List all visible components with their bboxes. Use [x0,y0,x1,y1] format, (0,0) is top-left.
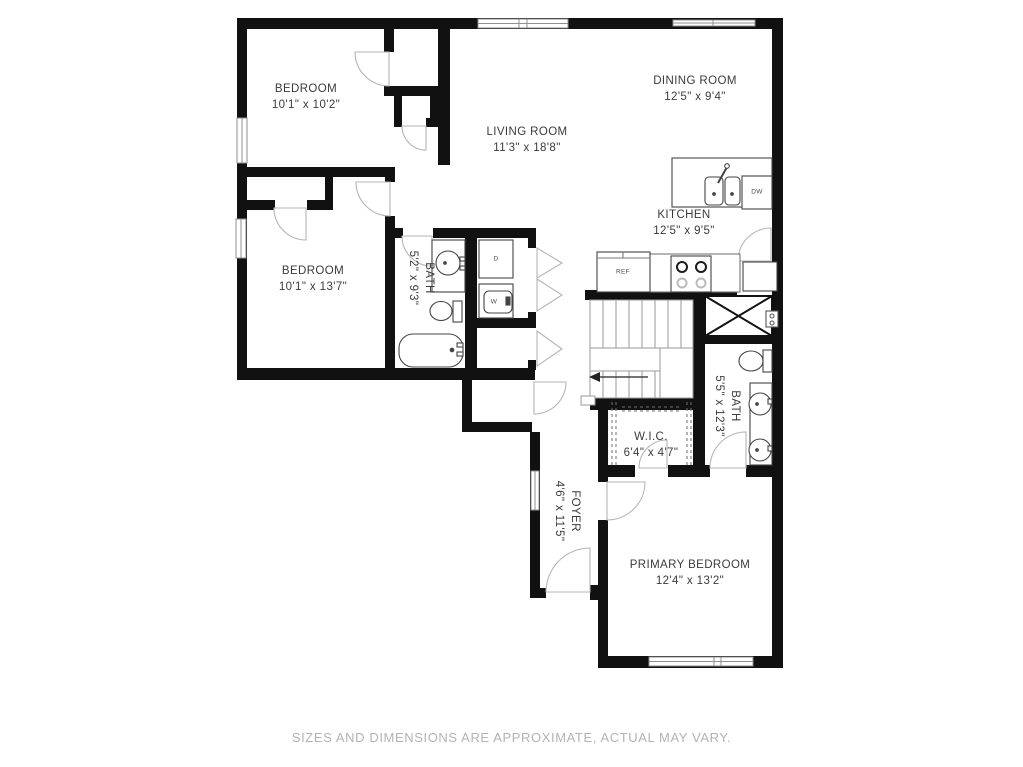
window-bedroom1 [237,118,247,163]
room-label-primary-bedroom: PRIMARY BEDROOM 12'4" x 13'2" [630,557,751,589]
bifold-laundry-upper [537,248,562,278]
door-primary [607,482,645,520]
door-bath2 [710,432,746,468]
room-name: BEDROOM [272,81,340,97]
burner [677,262,687,272]
room-dims: 5'5" x 12'3" [711,375,727,436]
floor-plan-graphic [0,0,1023,767]
room-label-bedroom-1: BEDROOM 10'1" x 10'2" [272,81,340,113]
room-label-bath-1: BATH 5'2" x 9'3" [405,251,437,306]
burner [697,279,706,288]
door-entry-foyer [546,548,590,592]
room-name: PRIMARY BEDROOM [630,557,751,573]
staircase [581,300,693,405]
door-bedroom2 [356,182,390,216]
room-label-kitchen: KITCHEN 12'5" x 9'5" [653,207,714,239]
burner [678,279,687,288]
floor-plan: BEDROOM 10'1" x 10'2" DINING ROOM 12'5" … [0,0,1023,767]
room-name: BATH [727,375,743,436]
room-name: DINING ROOM [653,73,737,89]
room-name: KITCHEN [653,207,714,223]
dryer-label: D [494,256,499,263]
bath1-sink [436,251,460,275]
bath2-toilet [739,351,763,371]
room-label-living-room: LIVING ROOM 11'3" x 18'8" [486,124,567,156]
bifold-closet2 [537,331,562,366]
room-label-dining-room: DINING ROOM 12'5" x 9'4" [653,73,737,105]
room-label-foyer: FOYER 4'6" x 11'5" [551,481,583,542]
bath2-toilet-tank [763,350,772,372]
room-dims: 6'4" x 4'7" [624,445,679,461]
door-hall-closet-small [402,126,426,150]
door-bedroom2-closet [274,208,306,240]
room-name: LIVING ROOM [486,124,567,140]
window-top-double [478,19,568,28]
room-dims: 12'5" x 9'4" [653,89,737,105]
room-label-bath-2: BATH 5'5" x 12'3" [711,375,743,436]
room-dims: 4'6" x 11'5" [551,481,567,542]
stair-base-step [581,396,595,405]
window-bedroom2 [236,219,246,258]
room-dims: 11'3" x 18'8" [486,140,567,156]
refrigerator-label: REF [616,269,630,276]
bifold-laundry-lower [537,279,562,311]
washer-label: W [491,299,497,306]
room-label-bedroom-2: BEDROOM 10'1" x 13'7" [279,263,347,295]
door-bedroom1 [355,52,389,86]
pantry-box [743,262,777,291]
room-dims: 12'4" x 13'2" [630,573,751,589]
room-name: BATH [421,251,437,306]
window-top-right [673,20,755,26]
room-dims: 5'2" x 9'3" [405,251,421,306]
room-dims: 12'5" x 9'5" [653,223,714,239]
door-closet3 [534,382,566,414]
burner [696,262,706,272]
disclaimer-text: SIZES AND DIMENSIONS ARE APPROXIMATE, AC… [0,730,1023,745]
room-name: W.I.C. [624,429,679,445]
window-foyer [531,471,539,510]
room-dims: 10'1" x 10'2" [272,97,340,113]
room-name: BEDROOM [279,263,347,279]
bath1-toilet-tank [453,301,462,322]
room-name: FOYER [567,481,583,542]
room-dims: 10'1" x 13'7" [279,279,347,295]
kitchen-sink-basin-right [725,177,740,205]
kitchen-sink-basin-left [705,177,723,205]
room-label-wic: W.I.C. 6'4" x 4'7" [624,429,679,461]
dishwasher-label: DW [751,189,762,196]
door-kitchen [738,228,771,261]
window-primary-double [649,657,753,666]
